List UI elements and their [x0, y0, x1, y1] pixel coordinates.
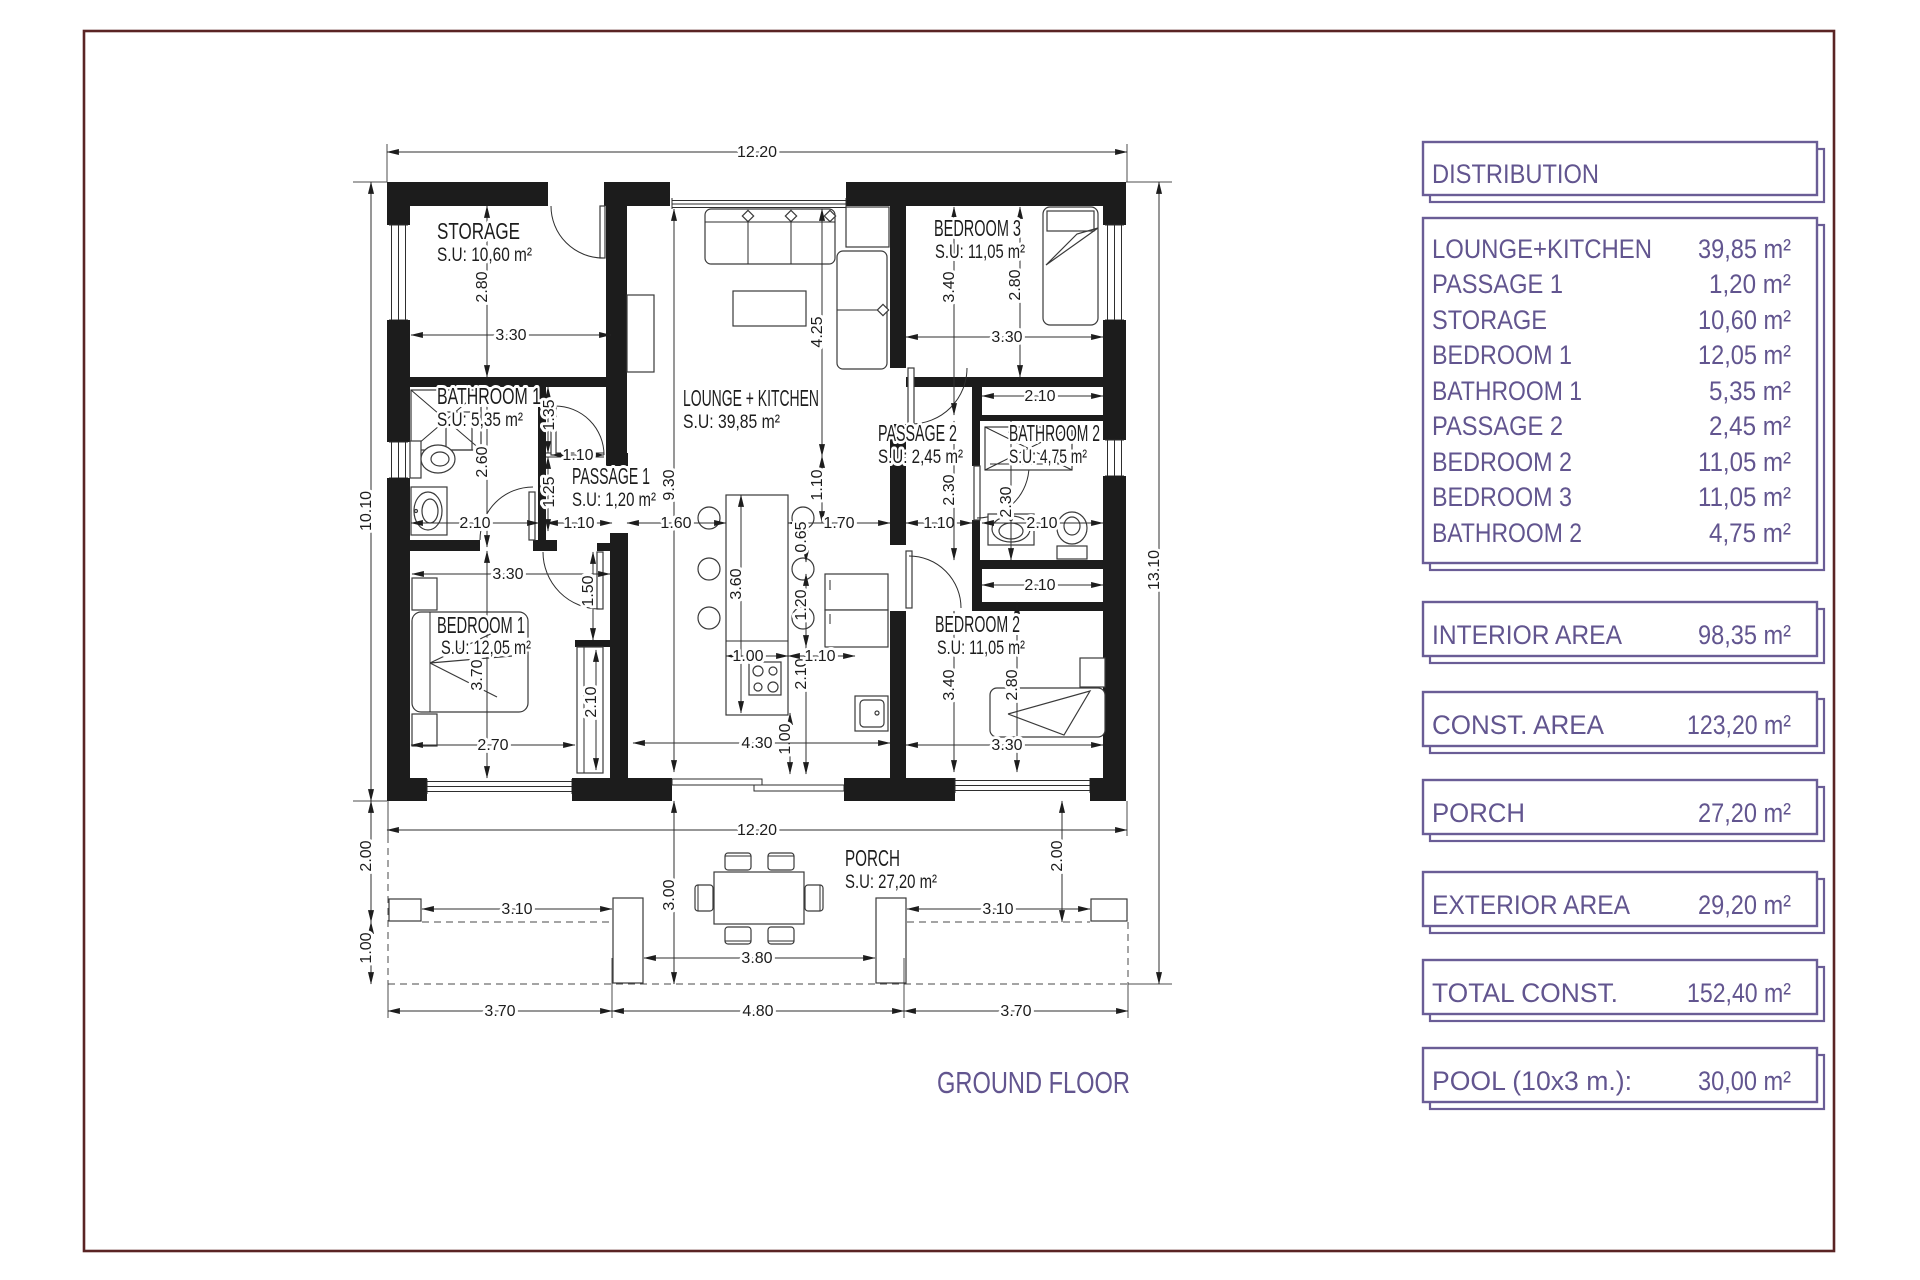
svg-text:3.70: 3.70 — [1000, 1003, 1031, 1020]
svg-text:PASSAGE 1: PASSAGE 1 — [572, 463, 650, 489]
svg-text:2,45 m²: 2,45 m² — [1709, 411, 1791, 441]
svg-text:PASSAGE 2: PASSAGE 2 — [1432, 411, 1563, 441]
svg-text:1.10: 1.10 — [804, 648, 835, 665]
svg-text:1.20: 1.20 — [793, 589, 810, 620]
svg-text:1,20 m²: 1,20 m² — [1709, 269, 1791, 299]
svg-text:1.00: 1.00 — [358, 932, 375, 963]
svg-text:4.25: 4.25 — [809, 316, 826, 347]
svg-text:98,35 m²: 98,35 m² — [1698, 620, 1791, 650]
svg-text:S.U: 11,05 m²: S.U: 11,05 m² — [937, 637, 1025, 659]
svg-text:5,35 m²: 5,35 m² — [1709, 376, 1791, 406]
svg-text:BATHROOM 2: BATHROOM 2 — [1009, 420, 1100, 446]
svg-text:S.U: 10,60 m²: S.U: 10,60 m² — [437, 244, 532, 266]
svg-text:1.50: 1.50 — [580, 575, 597, 606]
svg-text:152,40 m²: 152,40 m² — [1687, 978, 1791, 1008]
svg-text:2.30: 2.30 — [998, 486, 1015, 517]
svg-text:BATHROOM 2: BATHROOM 2 — [1432, 518, 1582, 548]
svg-text:1.35: 1.35 — [541, 399, 558, 430]
svg-text:27,20 m²: 27,20 m² — [1698, 798, 1791, 828]
svg-text:DISTRIBUTION: DISTRIBUTION — [1432, 159, 1599, 189]
svg-text:1.10: 1.10 — [562, 447, 593, 464]
svg-text:S.U: 5,35 m²: S.U: 5,35 m² — [437, 409, 523, 431]
svg-text:S.U: 1,20 m²: S.U: 1,20 m² — [572, 489, 656, 511]
svg-text:TOTAL CONST.: TOTAL CONST. — [1432, 978, 1618, 1008]
svg-text:4.80: 4.80 — [742, 1003, 773, 1020]
svg-text:3.40: 3.40 — [941, 271, 958, 302]
svg-text:S.U: 2,45 m²: S.U: 2,45 m² — [878, 446, 963, 468]
svg-text:10.10: 10.10 — [358, 491, 375, 531]
svg-text:11,05 m²: 11,05 m² — [1698, 482, 1791, 512]
svg-text:30,00 m²: 30,00 m² — [1698, 1066, 1791, 1096]
svg-text:12,05 m²: 12,05 m² — [1698, 340, 1791, 370]
svg-text:1.00: 1.00 — [777, 723, 794, 754]
svg-text:2.00: 2.00 — [1049, 840, 1066, 871]
svg-text:CONST. AREA: CONST. AREA — [1432, 710, 1604, 740]
svg-text:BEDROOM 3: BEDROOM 3 — [934, 215, 1021, 241]
svg-text:S.U: 12,05 m²: S.U: 12,05 m² — [441, 637, 531, 659]
svg-text:2.80: 2.80 — [1004, 669, 1021, 700]
svg-text:29,20 m²: 29,20 m² — [1698, 890, 1791, 920]
svg-text:3.10: 3.10 — [982, 901, 1013, 918]
svg-text:0.65: 0.65 — [793, 521, 810, 552]
svg-text:3.60: 3.60 — [728, 568, 745, 599]
svg-text:39,85 m²: 39,85 m² — [1698, 234, 1791, 264]
svg-text:1.70: 1.70 — [823, 515, 854, 532]
svg-text:1.25: 1.25 — [541, 476, 558, 507]
svg-text:BEDROOM 3: BEDROOM 3 — [1432, 482, 1572, 512]
svg-text:LOUNGE + KITCHEN: LOUNGE + KITCHEN — [683, 385, 819, 411]
svg-text:123,20 m²: 123,20 m² — [1687, 710, 1791, 740]
svg-text:2.10: 2.10 — [1026, 515, 1057, 532]
svg-text:BEDROOM 1: BEDROOM 1 — [1432, 340, 1572, 370]
svg-text:1.10: 1.10 — [809, 469, 826, 500]
svg-text:BEDROOM 2: BEDROOM 2 — [1432, 447, 1572, 477]
svg-text:12.20: 12.20 — [737, 144, 777, 161]
svg-text:1.10: 1.10 — [923, 515, 954, 532]
svg-text:2.10: 2.10 — [1024, 577, 1055, 594]
svg-text:9.30: 9.30 — [661, 469, 678, 500]
svg-text:3.70: 3.70 — [469, 659, 486, 690]
svg-text:BEDROOM 2: BEDROOM 2 — [935, 611, 1020, 637]
svg-text:10,60 m²: 10,60 m² — [1698, 305, 1791, 335]
svg-text:2.60: 2.60 — [474, 446, 491, 477]
svg-text:PASSAGE 2: PASSAGE 2 — [878, 420, 957, 446]
svg-text:2.80: 2.80 — [474, 271, 491, 302]
svg-text:12.20: 12.20 — [737, 822, 777, 839]
svg-text:S.U: 27,20 m²: S.U: 27,20 m² — [845, 871, 937, 893]
svg-text:GROUND FLOOR: GROUND FLOOR — [937, 1065, 1130, 1100]
svg-text:S.U: 11,05 m²: S.U: 11,05 m² — [935, 241, 1025, 263]
svg-text:PORCH: PORCH — [845, 845, 900, 871]
svg-text:4,75 m²: 4,75 m² — [1709, 518, 1791, 548]
svg-text:11,05 m²: 11,05 m² — [1698, 447, 1791, 477]
svg-text:2.30: 2.30 — [941, 474, 958, 505]
svg-text:BATHROOM 1: BATHROOM 1 — [437, 383, 541, 409]
svg-text:4.30: 4.30 — [741, 735, 772, 752]
svg-text:13.10: 13.10 — [1146, 550, 1163, 590]
svg-text:2.80: 2.80 — [1007, 269, 1024, 300]
svg-text:3.30: 3.30 — [492, 566, 523, 583]
svg-text:1.60: 1.60 — [660, 515, 691, 532]
svg-text:S.U: 4,75 m²: S.U: 4,75 m² — [1009, 446, 1087, 468]
svg-text:BEDROOM 1: BEDROOM 1 — [437, 612, 525, 638]
svg-text:LOUNGE+KITCHEN: LOUNGE+KITCHEN — [1432, 234, 1652, 264]
svg-text:STORAGE: STORAGE — [1432, 305, 1547, 335]
svg-text:3.30: 3.30 — [495, 327, 526, 344]
svg-text:POOL (10x3 m.):: POOL (10x3 m.): — [1432, 1066, 1632, 1096]
svg-text:1.00: 1.00 — [732, 648, 763, 665]
svg-text:PORCH: PORCH — [1432, 798, 1525, 828]
svg-text:2.10: 2.10 — [459, 515, 490, 532]
svg-text:3.40: 3.40 — [941, 669, 958, 700]
svg-text:INTERIOR AREA: INTERIOR AREA — [1432, 620, 1622, 650]
svg-text:EXTERIOR AREA: EXTERIOR AREA — [1432, 890, 1630, 920]
svg-text:S.U: 39,85 m²: S.U: 39,85 m² — [683, 411, 780, 433]
svg-text:BATHROOM 1: BATHROOM 1 — [1432, 376, 1582, 406]
svg-text:2.10: 2.10 — [583, 686, 600, 717]
svg-text:3.30: 3.30 — [991, 329, 1022, 346]
svg-text:2.00: 2.00 — [358, 840, 375, 871]
svg-text:2.70: 2.70 — [477, 737, 508, 754]
svg-text:3.70: 3.70 — [484, 1003, 515, 1020]
svg-text:2.10: 2.10 — [1024, 388, 1055, 405]
svg-text:3.80: 3.80 — [741, 950, 772, 967]
svg-text:3.30: 3.30 — [991, 737, 1022, 754]
svg-text:1.10: 1.10 — [563, 515, 594, 532]
svg-text:3.10: 3.10 — [501, 901, 532, 918]
svg-text:STORAGE: STORAGE — [437, 218, 520, 244]
svg-text:PASSAGE 1: PASSAGE 1 — [1432, 269, 1563, 299]
svg-text:3.00: 3.00 — [661, 879, 678, 910]
